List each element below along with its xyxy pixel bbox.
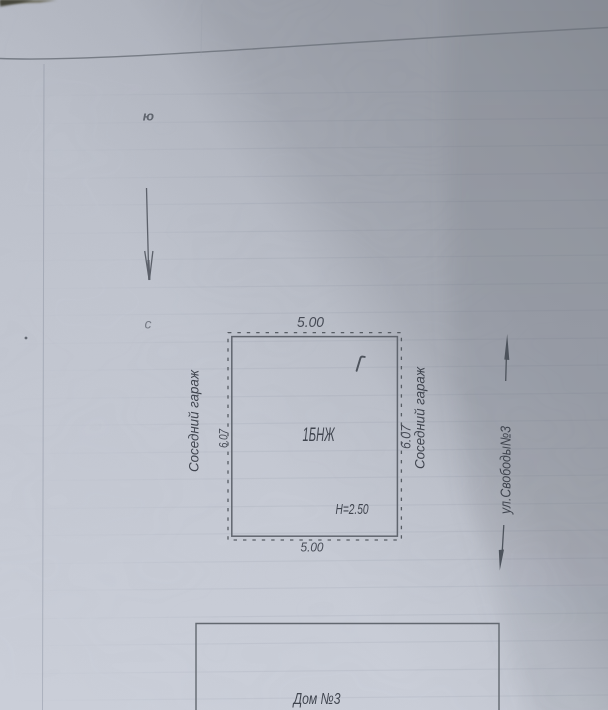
svg-text:Соседний гараж: Соседний гараж: [413, 366, 428, 469]
svg-text:6.07: 6.07: [399, 425, 414, 449]
svg-text:1БНЖ: 1БНЖ: [303, 425, 336, 446]
svg-text:ул.Свободы№3: ул.Свободы№3: [499, 426, 515, 515]
svg-text:Дом №3: Дом №3: [292, 691, 341, 708]
svg-text:ю: ю: [143, 109, 154, 124]
svg-text:6.07: 6.07: [217, 428, 231, 448]
svg-text:с: с: [145, 316, 152, 332]
svg-text:Соседний гараж: Соседний гараж: [187, 369, 202, 472]
svg-text:5.00: 5.00: [301, 541, 324, 555]
svg-text:Н=2.50: Н=2.50: [336, 501, 369, 518]
svg-text:5.00: 5.00: [297, 314, 325, 331]
